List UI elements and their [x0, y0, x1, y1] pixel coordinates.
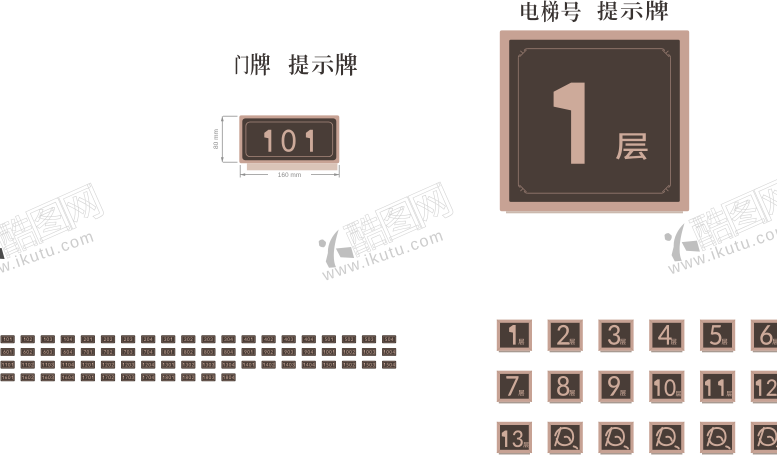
svg-text:160 mm: 160 mm — [278, 172, 301, 179]
svg-text:80 mm: 80 mm — [213, 129, 220, 149]
